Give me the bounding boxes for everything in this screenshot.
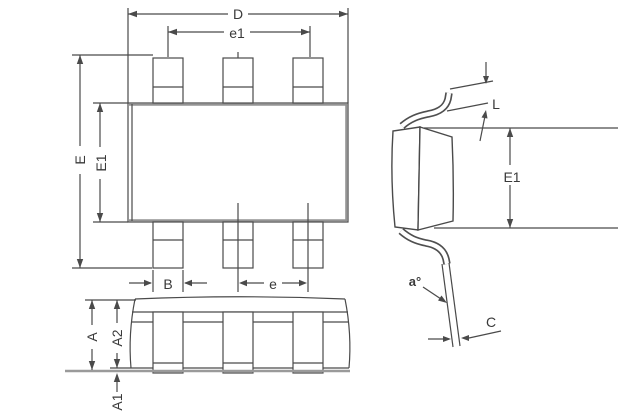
dim-label-A: A: [84, 332, 100, 342]
dimension-e1: e1: [168, 24, 310, 57]
front-view: A A2 A1: [65, 297, 350, 411]
arrowhead: [89, 300, 95, 309]
arrowhead: [144, 280, 152, 286]
arrowhead: [482, 110, 488, 119]
pin: [293, 312, 323, 373]
body-right-edge: [345, 299, 350, 368]
dim-label-B: B: [163, 276, 172, 292]
dim-label-E1-side: E1: [503, 169, 520, 185]
dimension-L: L: [447, 62, 500, 141]
body-front-face: [418, 127, 453, 230]
body-top-edge: [135, 297, 345, 299]
arrowhead: [77, 55, 83, 64]
extension-line: [447, 103, 488, 111]
bottom-lead-fill: [401, 231, 447, 264]
arrowhead: [507, 128, 513, 137]
drawing-svg: D e1 E E: [0, 0, 620, 416]
arrowhead: [438, 296, 447, 304]
dim-label-D: D: [233, 6, 243, 22]
arrowhead: [77, 259, 83, 268]
arrowhead: [97, 213, 103, 222]
dim-label-e1: e1: [229, 25, 245, 41]
body-side-face: [392, 127, 420, 230]
dimension-angle: a°: [409, 274, 447, 303]
package-outline-drawing: D e1 E E: [0, 0, 620, 416]
dim-label-C: C: [486, 314, 496, 330]
dimension-A2: A2: [108, 300, 131, 368]
arrowhead: [301, 29, 310, 35]
arrowhead: [97, 103, 103, 112]
arrowhead: [89, 361, 95, 370]
arrowhead: [114, 300, 120, 309]
dim-label-A2: A2: [109, 329, 125, 346]
dimension-E1-top-view: E1: [92, 103, 128, 222]
top-lead-fill: [402, 93, 449, 126]
arrowhead: [339, 11, 348, 17]
dim-label-A1: A1: [109, 393, 125, 410]
arrowhead: [299, 280, 307, 286]
arrowhead: [114, 373, 120, 382]
side-view: L E1 a° C: [392, 62, 618, 347]
top-view: D e1 E E: [72, 6, 348, 292]
dim-label-angle: a°: [409, 274, 421, 289]
pin: [223, 58, 253, 103]
dim-label-L: L: [492, 96, 500, 112]
dim-label-e: e: [269, 276, 277, 292]
pin: [153, 312, 183, 373]
pin: [293, 58, 323, 103]
dim-label-E1: E1: [93, 154, 109, 171]
arrowhead: [184, 280, 192, 286]
arrowhead: [443, 336, 451, 342]
arrowhead: [114, 359, 120, 368]
pin: [153, 58, 183, 103]
arrowhead: [507, 219, 513, 228]
pin: [223, 312, 253, 373]
body-left-edge: [130, 299, 135, 368]
leader-line: [423, 287, 441, 299]
front-pins: [153, 312, 323, 373]
dimension-B: B: [129, 270, 207, 292]
arrowhead: [128, 11, 137, 17]
dimension-A1: A1: [109, 373, 125, 411]
arrowhead: [168, 29, 177, 35]
top-pins: [153, 52, 323, 103]
dim-label-E: E: [72, 155, 88, 164]
dimension-line: [469, 331, 501, 338]
dimension-C: C: [428, 314, 501, 342]
arrowhead: [239, 280, 247, 286]
pin: [153, 222, 183, 268]
arrowhead: [461, 335, 469, 341]
